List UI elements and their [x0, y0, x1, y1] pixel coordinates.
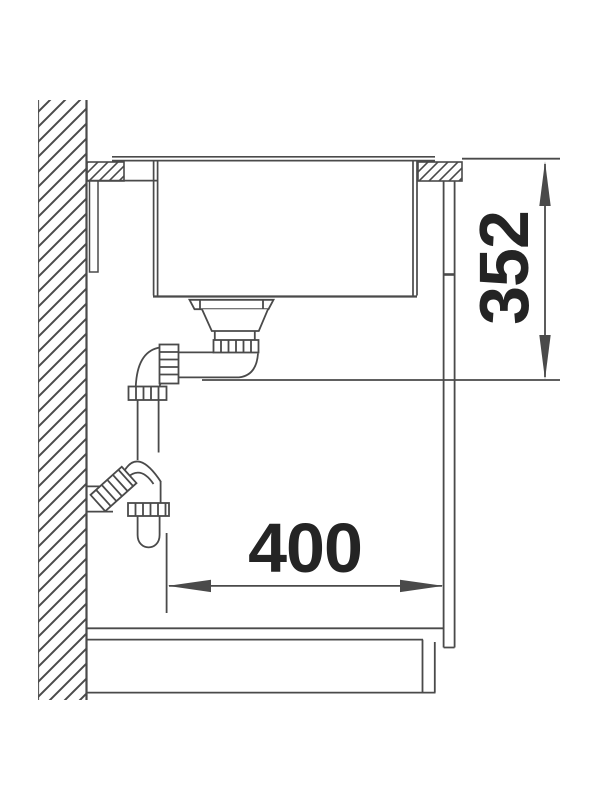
technical-drawing-canvas: 352 400	[0, 0, 600, 800]
elbow-outer-curve	[136, 348, 160, 387]
trap-tube-upper	[138, 400, 159, 460]
wall-hatch	[38, 100, 87, 700]
sink-rim-line	[112, 157, 435, 161]
strainer-bowl	[202, 309, 268, 331]
strainer-flange	[190, 300, 274, 309]
mounting-rail-back	[90, 181, 99, 272]
elbow-sleeve	[160, 345, 179, 384]
countertop-left-section	[87, 162, 124, 181]
cabinet-bottom-panel	[87, 628, 444, 639]
plinth-front	[423, 640, 435, 693]
drain-strainer	[190, 300, 274, 353]
dimension-400-label: 400	[155, 508, 455, 588]
section-drawing	[0, 0, 600, 800]
basin-walls	[154, 161, 417, 296]
dimension-352-label: 352	[464, 168, 544, 368]
strainer-neck	[215, 331, 255, 340]
trap-upper-nut	[129, 387, 167, 401]
countertop-right-section	[418, 162, 462, 181]
